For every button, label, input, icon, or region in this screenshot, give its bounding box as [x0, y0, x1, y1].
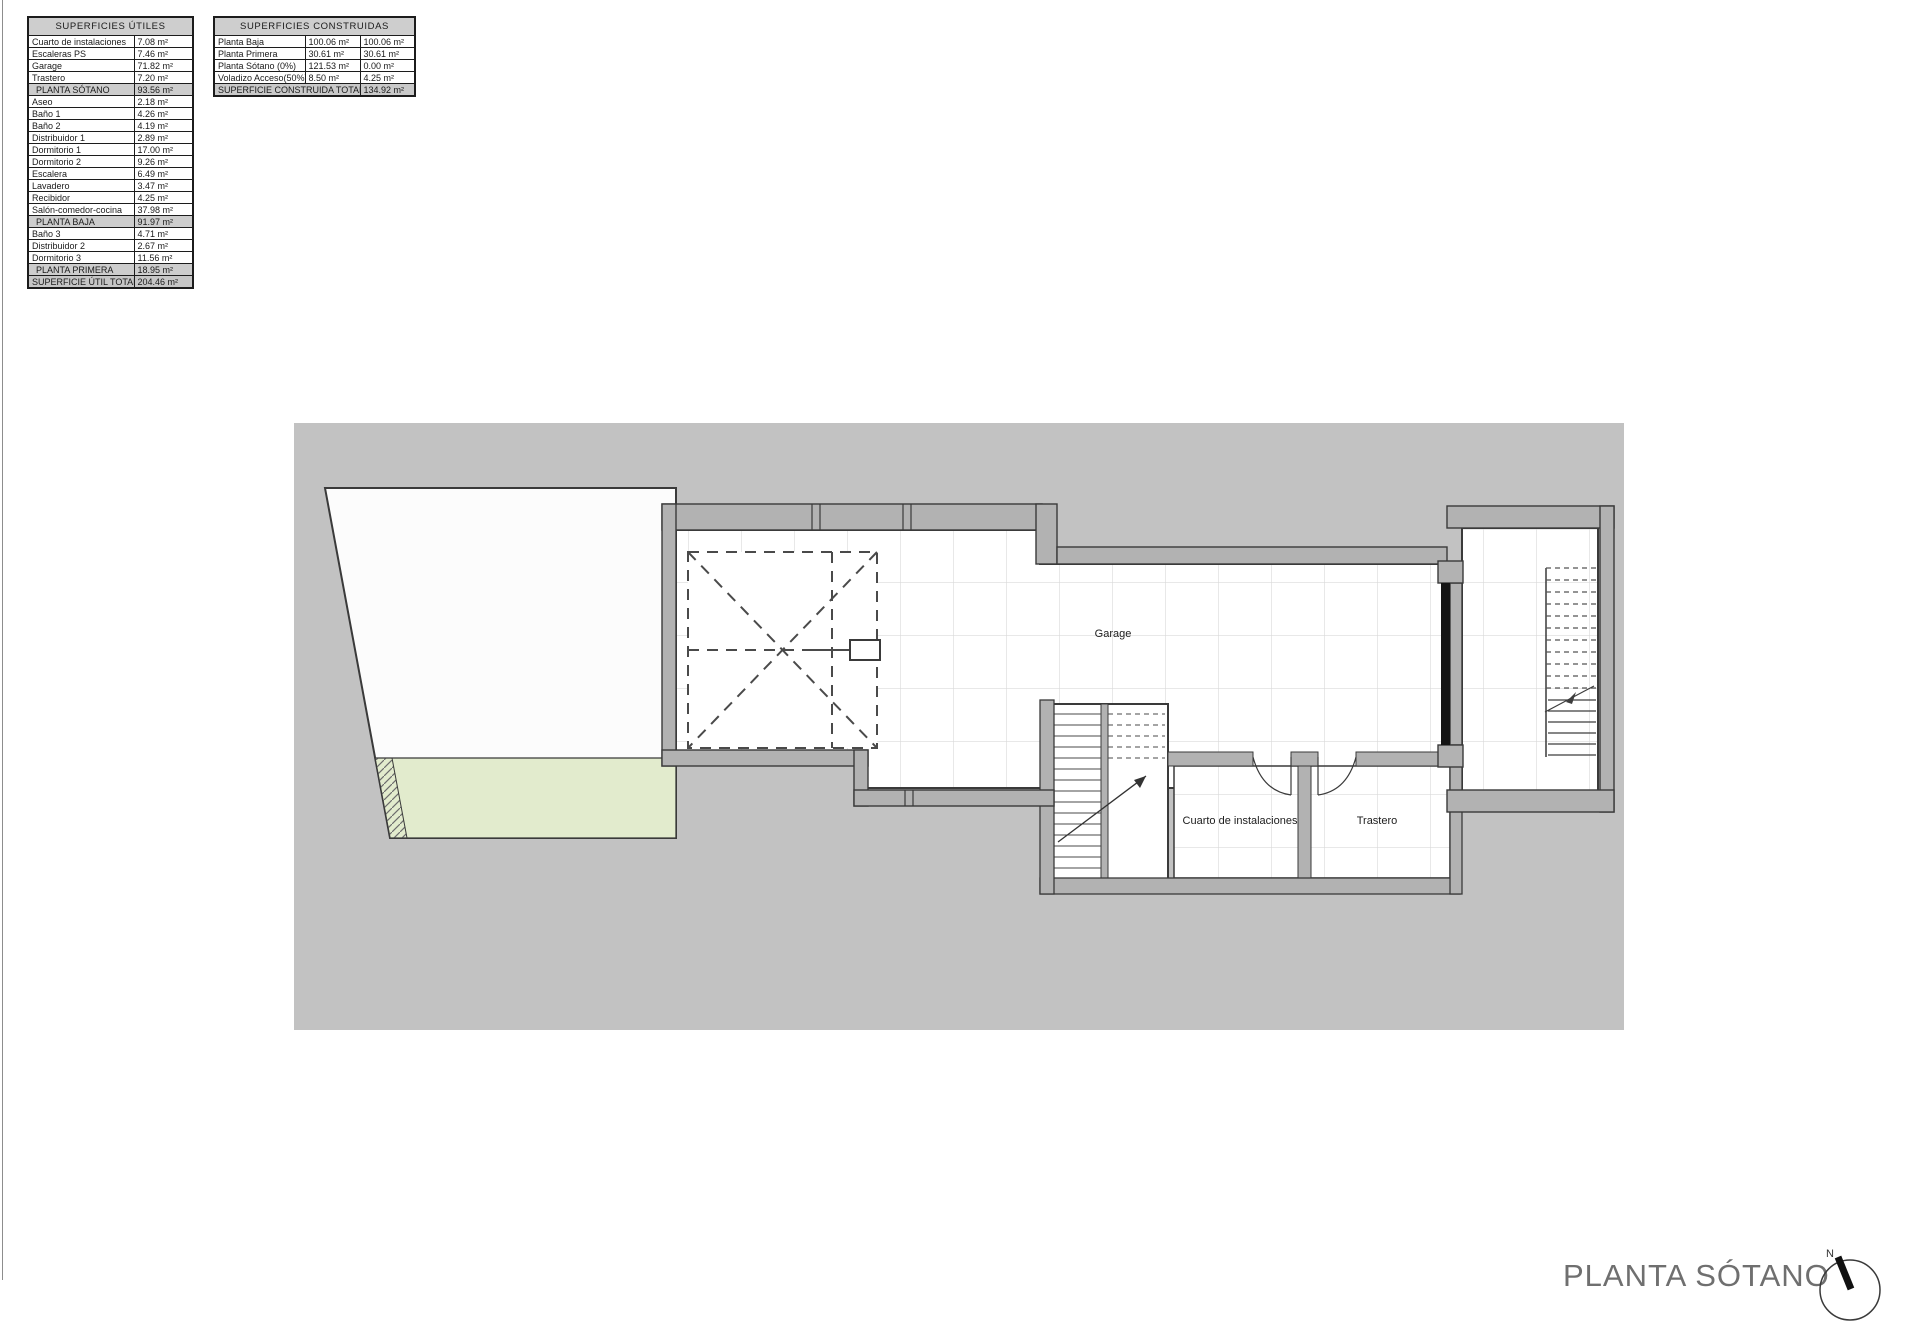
compass-circle: [1820, 1260, 1880, 1320]
cell-value: 37.98 m²: [134, 204, 193, 216]
cell-value: 7.20 m²: [134, 72, 193, 84]
cell-value2: 0.00 m²: [360, 60, 415, 72]
cell-label: Distribuidor 1: [28, 132, 134, 144]
north-compass: N: [1808, 1243, 1898, 1333]
table-row: Cuarto de instalaciones7.08 m²: [28, 36, 193, 48]
cell-label: Garage: [28, 60, 134, 72]
trastero-label: Trastero: [1357, 815, 1398, 827]
cell-label: Escalera: [28, 168, 134, 180]
cell-label: Recibidor: [28, 192, 134, 204]
cell-value: 91.97 m²: [134, 216, 193, 228]
pool-strip: [375, 758, 676, 838]
cell-value1: 30.61 m²: [305, 48, 360, 60]
cell-value: 204.46 m²: [134, 276, 193, 289]
cell-value: 3.47 m²: [134, 180, 193, 192]
cell-label: Escaleras PS: [28, 48, 134, 60]
cell-label: PLANTA BAJA: [28, 216, 134, 228]
table-row: Voladizo Acceso(50%)8.50 m²4.25 m²: [214, 72, 415, 84]
table-row: SUPERFICIE ÚTIL TOTAL204.46 m²: [28, 276, 193, 289]
cell-value: 9.26 m²: [134, 156, 193, 168]
storage-rooms: Cuarto de instalaciones Trastero: [1168, 752, 1458, 878]
table-row: Distribuidor 22.67 m²: [28, 240, 193, 252]
table-row: Distribuidor 12.89 m²: [28, 132, 193, 144]
cell-label: Dormitorio 1: [28, 144, 134, 156]
cell-label: Baño 1: [28, 108, 134, 120]
cell-label: Baño 3: [28, 228, 134, 240]
floor-plan: Garage: [294, 423, 1624, 1030]
cell-value: 18.95 m²: [134, 264, 193, 276]
superficies-utiles-table: SUPERFICIES ÚTILES Cuarto de instalacion…: [27, 16, 194, 289]
cell-value: 11.56 m²: [134, 252, 193, 264]
cell-label: Trastero: [28, 72, 134, 84]
table-row: PLANTA PRIMERA18.95 m²: [28, 264, 193, 276]
table-row: Salón-comedor-cocina37.98 m²: [28, 204, 193, 216]
table-row: Baño 24.19 m²: [28, 120, 193, 132]
total-value: 134.92 m²: [360, 84, 415, 97]
cell-label: PLANTA SÓTANO: [28, 84, 134, 96]
cell-label: Planta Primera: [214, 48, 305, 60]
table-title: SUPERFICIES CONSTRUIDAS: [214, 17, 415, 36]
ramp-void: [688, 552, 880, 748]
cell-value: 2.18 m²: [134, 96, 193, 108]
cell-label: Planta Baja: [214, 36, 305, 48]
total-label: SUPERFICIE CONSTRUIDA TOTAL: [214, 84, 360, 97]
table-row: Planta Primera30.61 m²30.61 m²: [214, 48, 415, 60]
instalaciones-label: Cuarto de instalaciones: [1183, 815, 1298, 827]
table-row: Planta Sótano (0%)121.53 m²0.00 m²: [214, 60, 415, 72]
cell-value: 7.46 m²: [134, 48, 193, 60]
table-row: Aseo2.18 m²: [28, 96, 193, 108]
table-row: Dormitorio 29.26 m²: [28, 156, 193, 168]
cell-value: 2.89 m²: [134, 132, 193, 144]
cell-value: 4.71 m²: [134, 228, 193, 240]
basement-stair: [1047, 704, 1168, 882]
cell-label: PLANTA PRIMERA: [28, 264, 134, 276]
cell-value: 17.00 m²: [134, 144, 193, 156]
table-row: Escalera6.49 m²: [28, 168, 193, 180]
garage-door-band: [1441, 583, 1450, 745]
cell-value: 4.26 m²: [134, 108, 193, 120]
cell-label: Cuarto de instalaciones: [28, 36, 134, 48]
cell-value1: 8.50 m²: [305, 72, 360, 84]
table-total-row: SUPERFICIE CONSTRUIDA TOTAL 134.92 m²: [214, 84, 415, 97]
cell-label: Aseo: [28, 96, 134, 108]
table-row: Baño 14.26 m²: [28, 108, 193, 120]
storage-divider-wall: [1298, 766, 1311, 878]
table-row: Dormitorio 311.56 m²: [28, 252, 193, 264]
cell-label: Planta Sótano (0%): [214, 60, 305, 72]
table-row: Escaleras PS7.46 m²: [28, 48, 193, 60]
table-row: PLANTA BAJA91.97 m²: [28, 216, 193, 228]
cell-value1: 100.06 m²: [305, 36, 360, 48]
storage-right-wall: [1450, 752, 1462, 894]
table-row: Recibidor4.25 m²: [28, 192, 193, 204]
cell-value: 4.25 m²: [134, 192, 193, 204]
page-edge-line: [2, 0, 3, 1280]
table-row: Planta Baja100.06 m²100.06 m²: [214, 36, 415, 48]
table-title: SUPERFICIES ÚTILES: [28, 17, 193, 36]
cell-value: 4.19 m²: [134, 120, 193, 132]
cell-value: 6.49 m²: [134, 168, 193, 180]
cell-value: 71.82 m²: [134, 60, 193, 72]
table-row: Trastero7.20 m²: [28, 72, 193, 84]
table-row: Garage71.82 m²: [28, 60, 193, 72]
cell-value: 7.08 m²: [134, 36, 193, 48]
cell-label: Distribuidor 2: [28, 240, 134, 252]
pillar: [850, 640, 880, 660]
table-row: Baño 34.71 m²: [28, 228, 193, 240]
plan-title: PLANTA SÓTANO: [1563, 1258, 1830, 1294]
cell-value2: 30.61 m²: [360, 48, 415, 60]
wing-bottom-wall: [1040, 878, 1460, 894]
table-row: PLANTA SÓTANO93.56 m²: [28, 84, 193, 96]
north-label: N: [1826, 1248, 1834, 1260]
cell-label: Baño 2: [28, 120, 134, 132]
cell-value: 2.67 m²: [134, 240, 193, 252]
entrance-hall: [1462, 528, 1598, 798]
superficies-construidas-table: SUPERFICIES CONSTRUIDAS Planta Baja100.0…: [213, 16, 416, 97]
cell-value: 93.56 m²: [134, 84, 193, 96]
cell-label: Dormitorio 3: [28, 252, 134, 264]
garage-label: Garage: [1095, 628, 1132, 640]
cell-label: Salón-comedor-cocina: [28, 204, 134, 216]
compass-needle: [1838, 1257, 1851, 1289]
cell-label: Lavadero: [28, 180, 134, 192]
cell-label: Voladizo Acceso(50%): [214, 72, 305, 84]
cell-value2: 4.25 m²: [360, 72, 415, 84]
table-row: Dormitorio 117.00 m²: [28, 144, 193, 156]
table-row: Lavadero3.47 m²: [28, 180, 193, 192]
cell-label: Dormitorio 2: [28, 156, 134, 168]
cell-value2: 100.06 m²: [360, 36, 415, 48]
cell-label: SUPERFICIE ÚTIL TOTAL: [28, 276, 134, 289]
cell-value1: 121.53 m²: [305, 60, 360, 72]
